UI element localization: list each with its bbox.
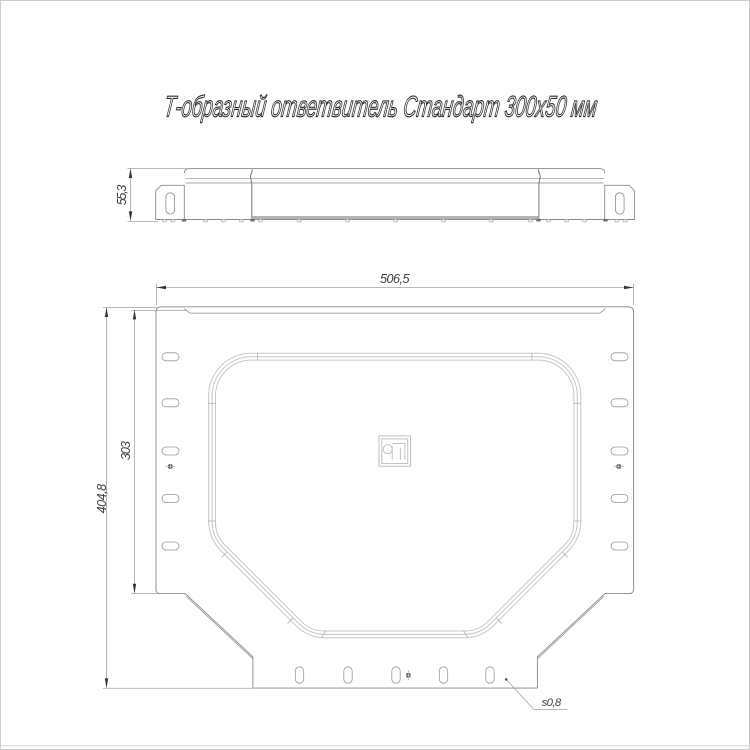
svg-text:404,8: 404,8 — [95, 484, 109, 513]
svg-text:s0,8: s0,8 — [542, 697, 562, 709]
svg-text:506,5: 506,5 — [380, 272, 410, 286]
svg-text:Т-образный ответвитель Стандар: Т-образный ответвитель Стандарт 300х50 м… — [162, 90, 599, 123]
svg-text:55,3: 55,3 — [115, 185, 129, 206]
svg-text:303: 303 — [119, 441, 133, 460]
